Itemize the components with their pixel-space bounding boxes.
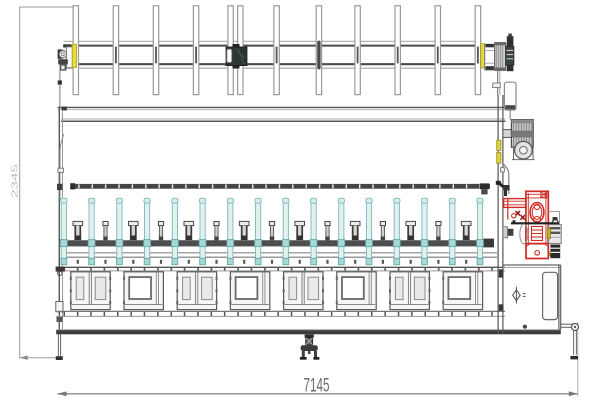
svg-text:7145: 7145 xyxy=(304,376,330,397)
svg-text:2345: 2345 xyxy=(10,164,20,198)
